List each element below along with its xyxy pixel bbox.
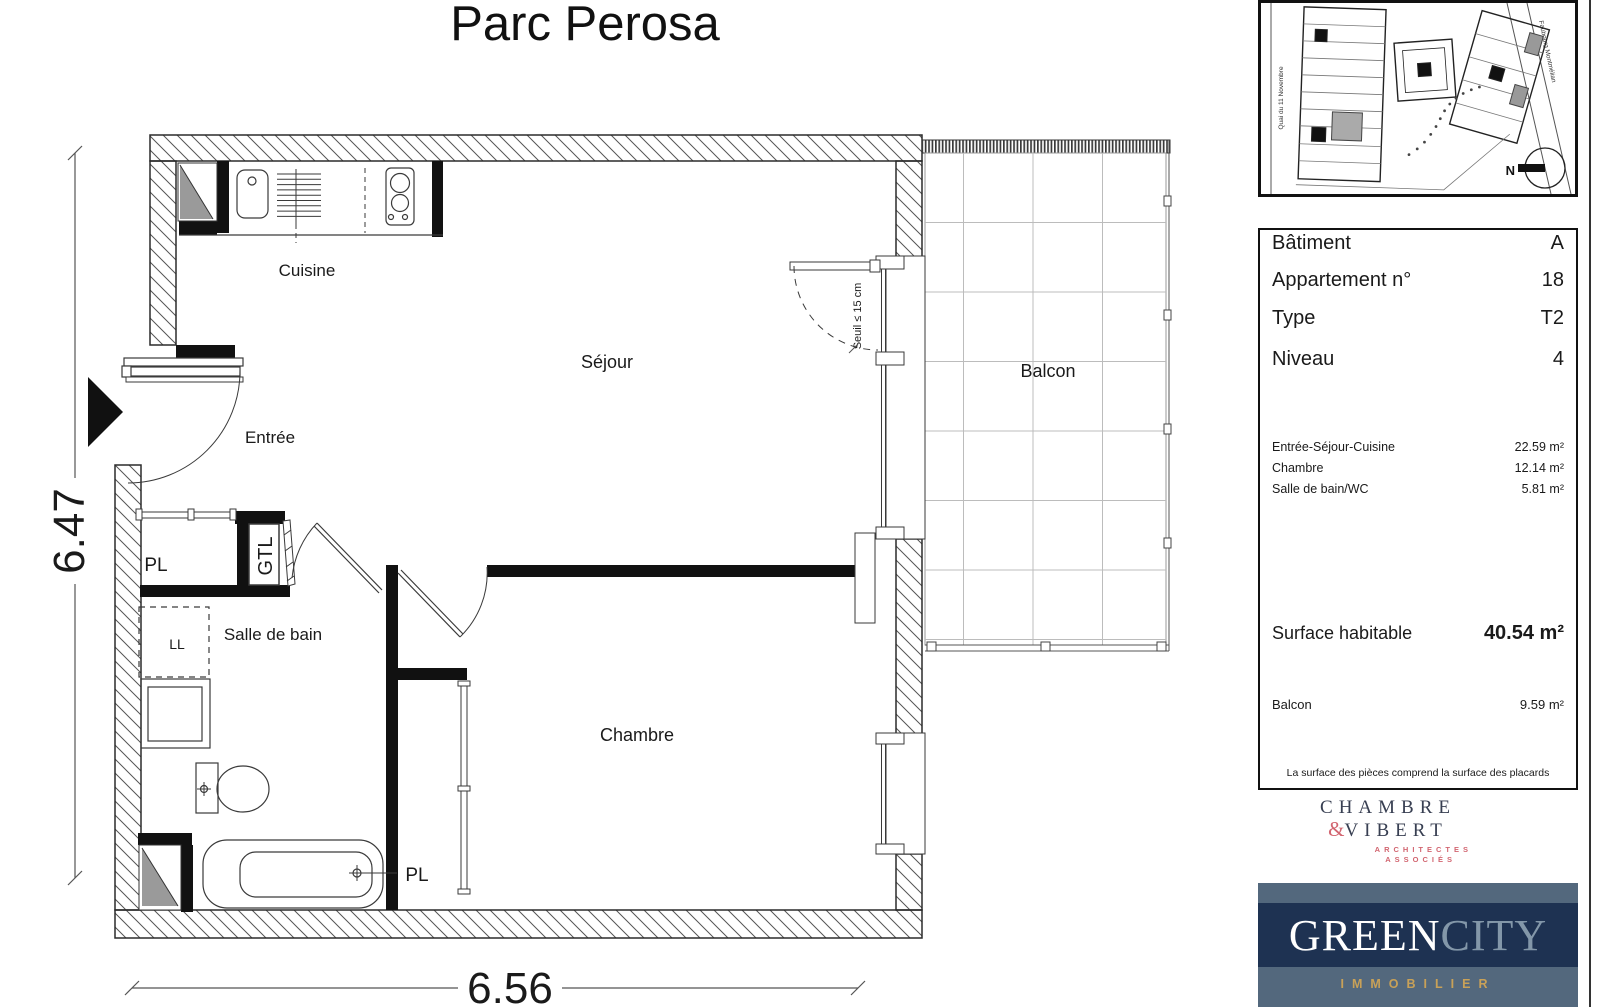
balcony-value: 9.59 m²: [1520, 697, 1564, 712]
info-label: Type: [1272, 307, 1315, 330]
site-plan-drawing: Quai du 11 Novembre Faubourg Montmélian …: [1261, 3, 1575, 194]
area-label: Chambre: [1272, 461, 1323, 475]
architect-name2: VIBERT: [1344, 820, 1447, 841]
vanity-unit: [141, 679, 210, 748]
apartment-info-panel: Bâtiment A Appartement n° 18 Type T2 Niv…: [1258, 228, 1578, 790]
balcony: [922, 140, 1171, 651]
exterior-walls: [115, 135, 922, 938]
area-label: Entrée-Séjour-Cuisine: [1272, 440, 1395, 454]
closet-label-entree: PL: [144, 555, 167, 576]
info-label: Appartement n°: [1272, 269, 1411, 292]
architect-logo: CHAMBRE &VIBERT ARCHITECTES ASSOCIÉS: [1298, 797, 1478, 864]
info-footnote: La surface des pièces comprend la surfac…: [1264, 767, 1572, 779]
page-title: Parc Perosa: [0, 0, 1170, 49]
dimension-height: 6.47: [45, 488, 94, 574]
bedroom-door: [398, 567, 487, 637]
threshold-note: Seuil ≤ 15 cm: [852, 283, 864, 350]
ampersand: &: [1328, 817, 1344, 841]
area-value: 12.14 m²: [1515, 461, 1564, 475]
info-row-type: Type T2: [1272, 307, 1564, 330]
area-row-entree-sejour-cuisine: Entrée-Séjour-Cuisine 22.59 m²: [1272, 440, 1564, 454]
surface-value: 40.54 m²: [1484, 622, 1564, 645]
info-row-appartement: Appartement n° 18: [1272, 269, 1564, 292]
info-value: T2: [1541, 307, 1564, 330]
developer-logo-band: GREENCITY: [1258, 903, 1578, 967]
room-label-cuisine: Cuisine: [279, 261, 336, 280]
info-value: 4: [1553, 348, 1564, 371]
developer-subtitle: IMMOBILIER: [1258, 977, 1578, 991]
info-row-niveau: Niveau 4: [1272, 348, 1564, 371]
room-label-salle-de-bain: Salle de bain: [224, 625, 322, 644]
bathtub: [203, 840, 397, 908]
developer-logo: GREENCITY IMMOBILIER: [1258, 883, 1578, 1007]
closet-label-chambre: PL: [405, 865, 428, 886]
toilet: [196, 763, 269, 813]
room-label-entree: Entrée: [245, 428, 295, 447]
architect-subtitle-2: ASSOCIÉS: [1298, 855, 1478, 864]
street-label-left: Quai du 11 Novembre: [1278, 66, 1285, 129]
gtl-door-leaf: [283, 520, 295, 586]
developer-word-green: GREEN: [1289, 910, 1441, 961]
surface-habitable-row: Surface habitable 40.54 m²: [1272, 622, 1564, 645]
info-row-batiment: Bâtiment A: [1272, 232, 1564, 255]
kitchen-drainer: [277, 168, 365, 243]
site-path-dots: [1408, 83, 1481, 158]
entrance-arrow: [88, 377, 123, 447]
room-label-chambre: Chambre: [600, 725, 674, 745]
info-label: Niveau: [1272, 348, 1334, 371]
surface-label: Surface habitable: [1272, 623, 1412, 644]
floorplan-drawing: 6.47 6.56 Cuisine Séjour Entrée Salle de…: [0, 0, 1240, 1007]
washing-machine-label: LL: [169, 636, 185, 652]
architect-name-line1: CHAMBRE: [1298, 797, 1478, 819]
room-label-sejour: Séjour: [581, 352, 633, 372]
bathroom-door: [292, 523, 382, 593]
radiator: [855, 533, 875, 623]
site-plan: Quai du 11 Novembre Faubourg Montmélian …: [1258, 0, 1578, 197]
balcony-label: Balcon: [1272, 697, 1312, 712]
architect-subtitle-1: ARCHITECTES: [1298, 845, 1478, 854]
north-label: N: [1506, 163, 1515, 178]
north-compass: N: [1506, 148, 1565, 188]
room-label-balcon: Balcon: [1020, 361, 1075, 381]
floorplan-sheet: 6.47 6.56 Cuisine Séjour Entrée Salle de…: [0, 0, 1600, 1007]
info-value: 18: [1542, 269, 1564, 292]
info-label: Bâtiment: [1272, 232, 1351, 255]
gtl-label: GTL: [255, 537, 277, 576]
info-value: A: [1551, 232, 1564, 255]
kitchen-cooktop: [386, 168, 414, 225]
sheet-edge-line: [1589, 0, 1591, 1007]
area-value: 5.81 m²: [1522, 482, 1564, 496]
developer-word-city: CITY: [1441, 910, 1548, 961]
dimension-width: 6.56: [467, 964, 553, 1007]
area-label: Salle de bain/WC: [1272, 482, 1369, 496]
bedroom-closet-sliding-door: [458, 681, 470, 894]
balcony-area-row: Balcon 9.59 m²: [1272, 697, 1564, 712]
area-row-salle-de-bain: Salle de bain/WC 5.81 m²: [1272, 482, 1564, 496]
interior-walls: [138, 161, 860, 912]
area-value: 22.59 m²: [1515, 440, 1564, 454]
area-row-chambre: Chambre 12.14 m²: [1272, 461, 1564, 475]
architect-name-line2: &VIBERT: [1298, 817, 1478, 842]
